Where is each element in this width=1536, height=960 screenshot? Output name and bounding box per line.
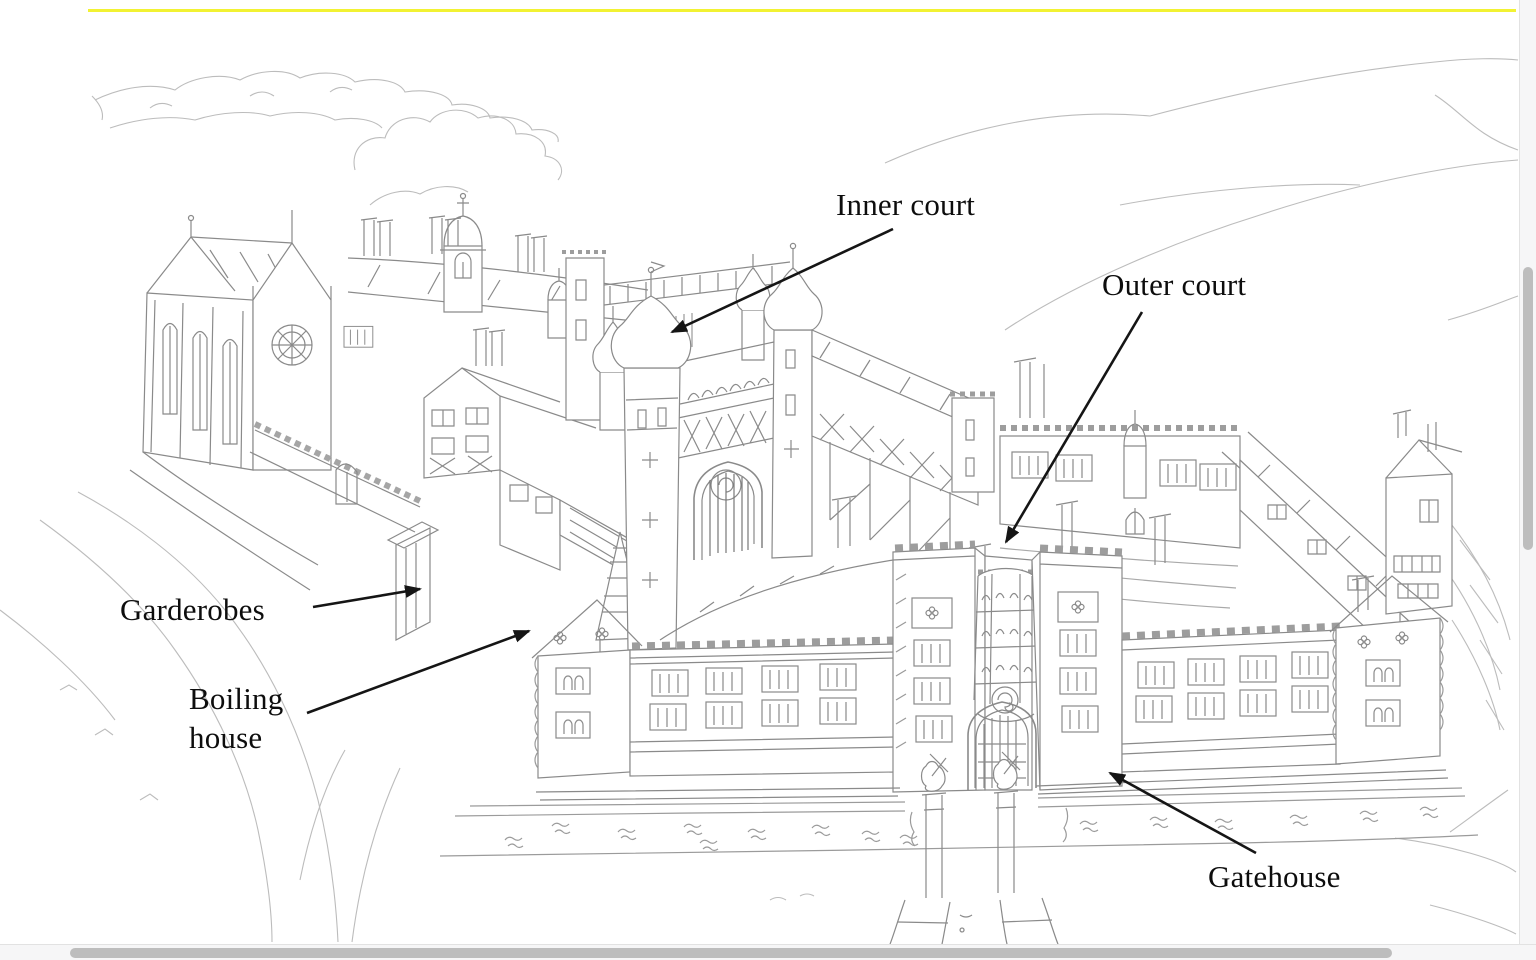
moat — [440, 788, 1478, 856]
label-outer-court: Outer court — [1102, 266, 1246, 305]
palace-illustration — [0, 0, 1519, 944]
background-landscape — [0, 59, 1518, 942]
label-boiling-house: Boiling house — [189, 680, 319, 758]
arrow-gatehouse — [1110, 773, 1256, 853]
vertical-scrollbar-thumb[interactable] — [1523, 267, 1533, 550]
label-inner-court: Inner court — [836, 186, 975, 225]
label-garderobes: Garderobes — [120, 591, 265, 630]
arrow-boiling-house — [307, 631, 529, 713]
horizontal-scrollbar-thumb[interactable] — [70, 948, 1392, 958]
viewer-stage: Inner court Outer court Garderobes Boili… — [0, 0, 1536, 960]
label-gatehouse: Gatehouse — [1208, 858, 1341, 897]
page-content: Inner court Outer court Garderobes Boili… — [0, 0, 1519, 944]
